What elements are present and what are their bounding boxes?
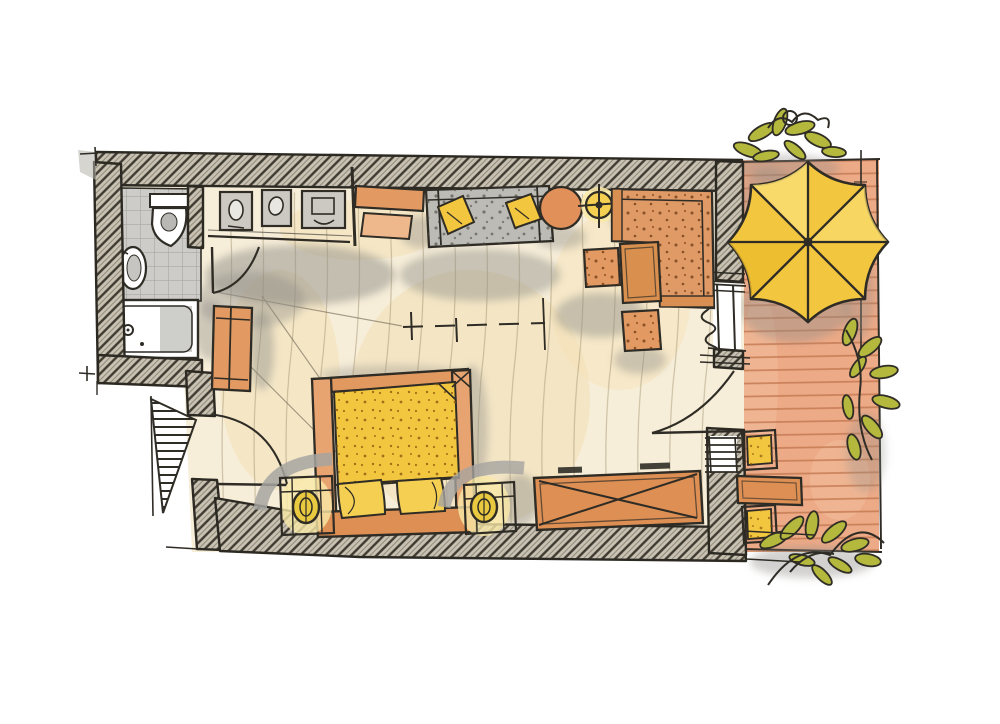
- wardrobe: [212, 306, 252, 391]
- sofa: [426, 186, 553, 247]
- lounge-armrest-left: [612, 189, 622, 241]
- wall-left-upper: [94, 162, 125, 383]
- bench-leg-mark: [558, 467, 582, 474]
- double-bed: [312, 369, 477, 537]
- sketch-sheet: [0, 0, 1000, 724]
- floor-plan-drawing: [0, 0, 1000, 724]
- wall-right-upper: [716, 161, 743, 282]
- bench-leg-mark: [640, 462, 670, 469]
- built-in-cabinet-3: [302, 191, 345, 228]
- built-in-cabinet-1: [220, 192, 252, 230]
- window-lower: [705, 436, 741, 473]
- bathroom-door-leaf: [212, 247, 213, 293]
- bathtub-drain: [140, 342, 144, 346]
- built-in-cabinet-2: [262, 190, 291, 226]
- round-side-table: [540, 187, 582, 229]
- stool-1: [584, 248, 620, 287]
- parasol-pole: [804, 238, 813, 247]
- wall-bathroom-partition: [188, 186, 203, 248]
- coffee-table: [620, 242, 661, 303]
- desk-bench: [361, 213, 412, 239]
- wall-left-step: [186, 371, 215, 416]
- outdoor-table: [737, 476, 802, 505]
- pillow-right: [397, 478, 445, 514]
- pillow-left: [338, 480, 385, 518]
- stool-2: [622, 310, 661, 351]
- parasol: [728, 162, 888, 322]
- cross-tick: [79, 366, 95, 381]
- lounge-armrest-bottom: [660, 296, 714, 307]
